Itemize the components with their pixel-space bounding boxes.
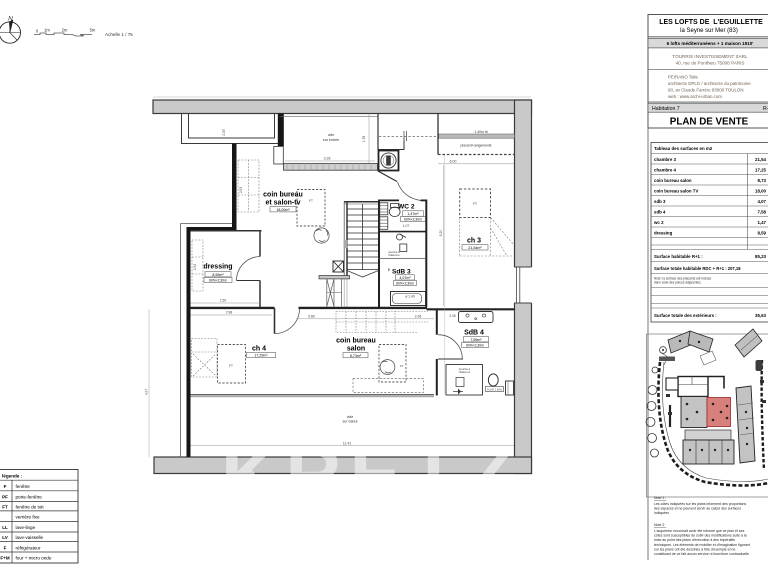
svg-text:N: N (8, 16, 13, 23)
svg-text:KRETZ: KRETZ (221, 430, 521, 518)
svg-text:18,00: 18,00 (755, 188, 767, 193)
svg-text:Les côtes indiquées sur les pl: Les côtes indiquées sur les plans inform… (654, 502, 746, 506)
svg-text:dressing: dressing (203, 264, 232, 271)
svg-text:F+M: F+M (0, 556, 9, 561)
svg-text:60%<2,30m: 60%<2,30m (209, 278, 227, 282)
svg-text:21,54: 21,54 (755, 157, 767, 162)
svg-text:techniques. Les éléments de mo: techniques. Les éléments de mobilier et … (654, 543, 750, 547)
svg-text:ch 3: ch 3 (467, 238, 481, 245)
svg-text:85,23: 85,23 (755, 254, 767, 259)
svg-text:2m: 2m (62, 28, 68, 33)
svg-text:vide: vide (328, 133, 335, 137)
svg-text:four + micro onde: four + micro onde (16, 556, 52, 561)
svg-text:2.98: 2.98 (226, 311, 233, 315)
svg-text:1.50: 1.50 (220, 299, 227, 303)
svg-text:placard+rangements: placard+rangements (460, 144, 491, 148)
svg-text:FT: FT (2, 505, 8, 510)
svg-text:TOURRIS INVESTISSEMENT SARL: TOURRIS INVESTISSEMENT SARL (672, 54, 748, 59)
svg-text:PEIRANO Talie: PEIRANO Talie (668, 75, 698, 80)
svg-text:6 lofts méditerranéens + 1 mai: 6 lofts méditerranéens + 1 maison 1910' (667, 41, 754, 46)
svg-text:vide: vide (347, 415, 354, 419)
svg-text:sur entrée: sur entrée (323, 138, 339, 142)
svg-text:côtes sont susceptibles de sub: côtes sont susceptibles de subir des mod… (654, 534, 747, 538)
svg-text:18,00m²: 18,00m² (276, 208, 290, 212)
svg-text:1m: 1m (44, 28, 50, 33)
svg-text:constituant de ce fait aucun s: constituant de ce fait aucun service ni … (654, 552, 749, 556)
svg-text:fenêtre: fenêtre (16, 484, 31, 489)
svg-text:FT: FT (309, 199, 313, 203)
svg-text:Tableau des surfaces en m2: Tableau des surfaces en m2 (654, 146, 713, 151)
svg-text:LV: LV (2, 535, 8, 540)
svg-text:21,54m²: 21,54m² (468, 246, 482, 250)
svg-text:Achelle 1 / 75: Achelle 1 / 75 (105, 32, 133, 37)
svg-text:coin bureau: coin bureau (336, 338, 376, 345)
svg-text:mise au point des plans d'exéc: mise au point des plans d'exécution à de… (654, 538, 735, 542)
svg-text:8,73: 8,73 (757, 178, 766, 183)
svg-text:l'italienne: l'italienne (459, 370, 471, 374)
svg-text:la Seyne sur Mer (83): la Seyne sur Mer (83) (680, 28, 738, 34)
svg-text:lave-linge: lave-linge (16, 525, 36, 530)
svg-text:2.92: 2.92 (193, 264, 197, 270)
svg-text:FT: FT (473, 202, 477, 206)
svg-text:lave-vaisselle: lave-vaisselle (16, 535, 44, 540)
svg-text:2.08: 2.08 (415, 314, 422, 318)
svg-text:60%<2,30m: 60%<2,30m (396, 281, 414, 285)
svg-text:5m: 5m (90, 28, 96, 33)
svg-text:8,59: 8,59 (757, 230, 766, 235)
svg-text:dans celle des pièces adjacent: dans celle des pièces adjacentes. (654, 281, 702, 285)
svg-text:Habitation 7: Habitation 7 (652, 106, 680, 112)
svg-text:F: F (4, 546, 7, 551)
svg-text:L'acquéreur reconnaît avoir ét: L'acquéreur reconnaît avoir été informé … (654, 529, 745, 533)
svg-text:indiquées: indiquées (654, 511, 669, 515)
svg-text:1,47: 1,47 (757, 220, 766, 225)
svg-text:8,59m²: 8,59m² (212, 273, 224, 277)
svg-text:3.28: 3.28 (324, 157, 331, 161)
svg-text:7,59m²: 7,59m² (470, 338, 482, 342)
svg-text:Surface totale des extérieurs: Surface totale des extérieurs : (654, 313, 717, 318)
svg-text:1,47m²: 1,47m² (407, 212, 419, 216)
svg-text:1.07: 1.07 (403, 224, 410, 228)
svg-text:sdb 4: sdb 4 (654, 209, 666, 214)
svg-text:7,58: 7,58 (757, 209, 766, 214)
svg-text:2.03: 2.03 (239, 187, 243, 193)
svg-text:17,29m²: 17,29m² (254, 354, 268, 358)
svg-text:chambre 4: chambre 4 (654, 167, 677, 172)
svg-text:2.06: 2.06 (449, 314, 455, 318)
svg-text:FT: FT (400, 364, 404, 368)
svg-text:40, rue de Ponthieu 75008 PARI: 40, rue de Ponthieu 75008 PARIS (676, 61, 745, 66)
svg-text:SdB 4: SdB 4 (464, 330, 484, 337)
svg-text:chambre 3: chambre 3 (654, 157, 677, 162)
svg-text:web : www.archi-urban.com: web : www.archi-urban.com (668, 94, 722, 99)
svg-text:60%<2,30m: 60%<2,30m (466, 343, 484, 347)
svg-text:légende :: légende : (2, 474, 23, 479)
svg-text:5.20: 5.20 (439, 230, 443, 237)
svg-text:sur les plans ont été dessinés: sur les plans ont été dessinés à titre d… (654, 547, 735, 551)
svg-text:des espaces et ne peuvent serv: des espaces et ne peuvent servir au calc… (654, 507, 741, 511)
svg-text:coin bureau salon: coin bureau salon (654, 178, 692, 183)
svg-text:Note 1 :: Note 1 : (654, 496, 666, 500)
svg-text:1.40m ht: 1.40m ht (474, 130, 487, 134)
svg-text:1.78: 1.78 (362, 136, 366, 143)
svg-text:sur bahut: sur bahut (343, 420, 358, 424)
svg-text:4.97: 4.97 (145, 389, 149, 395)
svg-text:PLAN DE VENTE: PLAN DE VENTE (670, 117, 749, 128)
svg-text:salon: salon (347, 346, 365, 353)
svg-text:H.SsP 1.80m: H.SsP 1.80m (487, 387, 502, 391)
svg-text:Surface habitable R+1 :: Surface habitable R+1 : (654, 254, 703, 259)
svg-text:90, av Claude Farrère 83000 TO: 90, av Claude Farrère 83000 TOULON (668, 88, 744, 93)
svg-text:6.00: 6.00 (450, 160, 457, 164)
svg-text:sdb 3: sdb 3 (654, 199, 666, 204)
svg-text:60%<2,30m: 60%<2,30m (404, 217, 422, 221)
svg-text:2.05: 2.05 (222, 129, 226, 135)
svg-text:PF: PF (2, 495, 8, 500)
svg-text:4,07m²: 4,07m² (399, 276, 411, 280)
svg-text:dressing: dressing (654, 230, 673, 235)
svg-text:17,25: 17,25 (755, 167, 767, 172)
svg-text:l'italienne: l'italienne (388, 253, 400, 257)
svg-text:WC 2: WC 2 (398, 204, 415, 211)
svg-text:SdB 3: SdB 3 (392, 269, 411, 276)
svg-text:Surface totale habitable RDC +: Surface totale habitable RDC + R+1 : 207… (654, 266, 741, 271)
svg-text:8,73m²: 8,73m² (350, 354, 362, 358)
svg-text:verrière fixe: verrière fixe (16, 515, 40, 520)
svg-text:wc 2: wc 2 (653, 220, 664, 225)
svg-text:fenêtre de toit: fenêtre de toit (16, 505, 45, 510)
svg-text:ch 4: ch 4 (252, 346, 266, 353)
svg-text:R+: R+ (763, 106, 768, 112)
svg-text:LES LOFTS DE L'EGUILLETTE: LES LOFTS DE L'EGUILLETTE (659, 19, 763, 26)
svg-text:coin bureau salon TV: coin bureau salon TV (654, 188, 698, 193)
svg-text:FT: FT (229, 364, 233, 368)
svg-text:porte-fenêtre: porte-fenêtre (16, 495, 43, 500)
svg-text:et salon-tv: et salon-tv (265, 200, 300, 207)
svg-text:4,07: 4,07 (757, 199, 766, 204)
svg-text:35,63: 35,63 (755, 313, 767, 318)
svg-text:ø 1.40: ø 1.40 (405, 295, 415, 299)
svg-text:9.80: 9.80 (308, 314, 315, 318)
svg-text:LL: LL (2, 525, 8, 530)
svg-text:réfrigérateur: réfrigérateur (16, 546, 41, 551)
svg-text:Note 2 :: Note 2 : (654, 523, 666, 527)
svg-text:F: F (4, 484, 7, 489)
svg-text:architecte DPLG / architecte d: architecte DPLG / architecte du patrimoi… (668, 81, 751, 86)
